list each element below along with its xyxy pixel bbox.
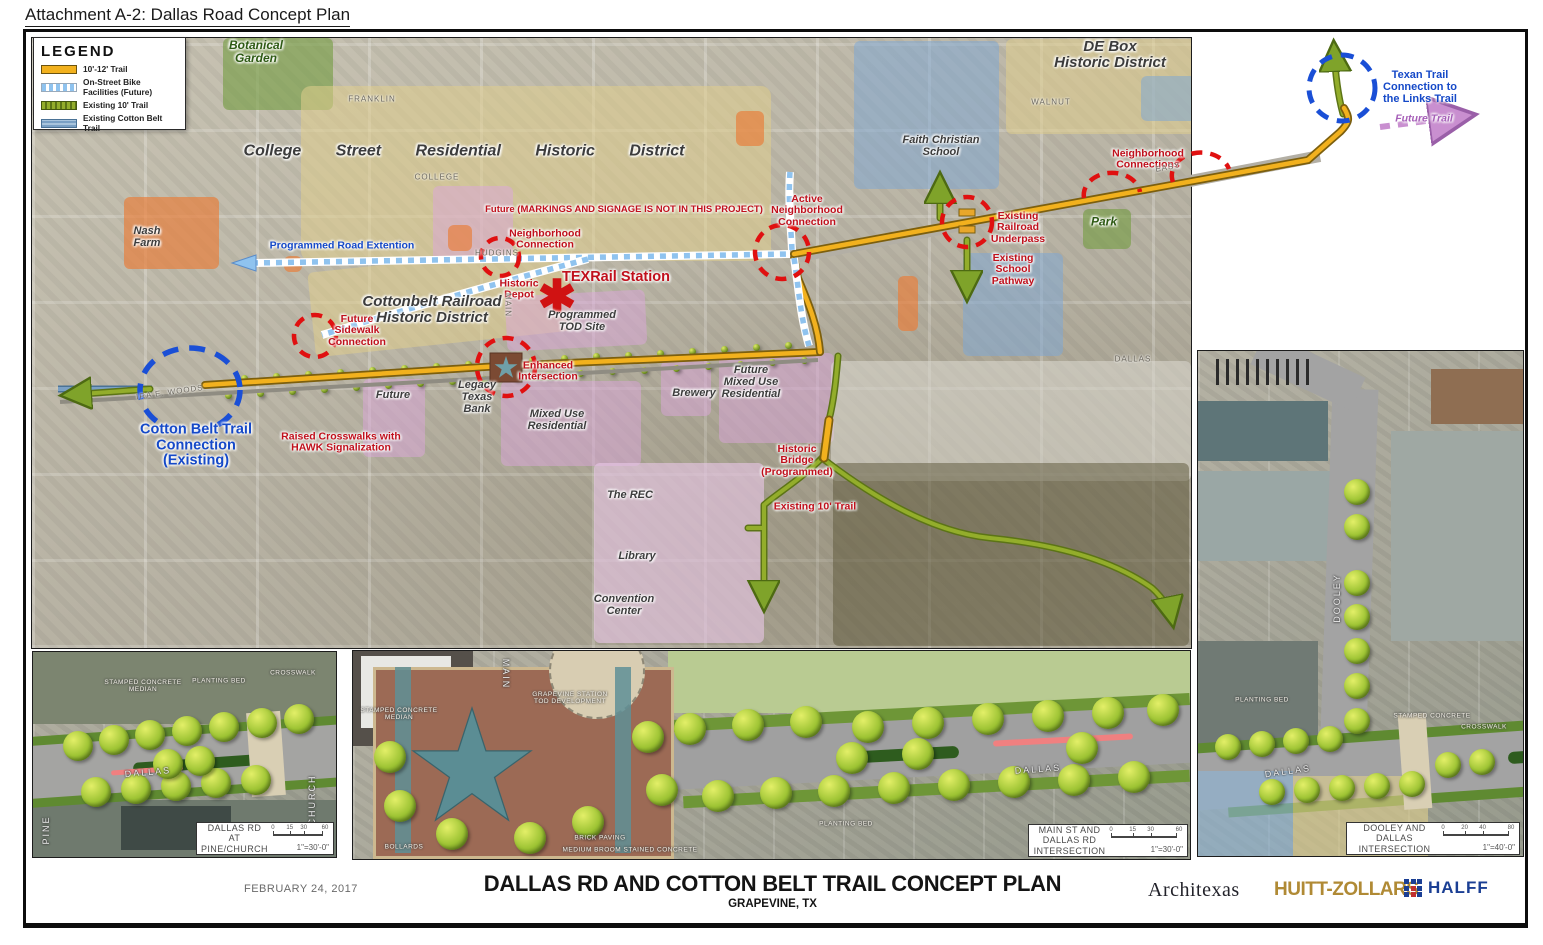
overlay-nash-farm bbox=[124, 197, 219, 269]
main-map-panel bbox=[31, 37, 1192, 649]
inset-main-teal-walk-e bbox=[615, 667, 631, 853]
overlay-parcel-4 bbox=[898, 276, 918, 331]
legend-item-bike-future: On-Street Bike Facilities (Future) bbox=[41, 77, 178, 97]
plan-subtitle: GRAPEVINE, TX bbox=[728, 898, 817, 910]
legend-title: LEGEND bbox=[41, 43, 178, 60]
cotton-belt-swatch-icon bbox=[41, 119, 77, 128]
trail-10-12-swatch-icon bbox=[41, 65, 77, 74]
overlay-parcel-1 bbox=[736, 111, 764, 146]
caption-dooley-dallas: DOOLEY AND DALLAS INTERSECTION 0204080 1… bbox=[1346, 822, 1520, 855]
overlay-field bbox=[833, 463, 1189, 646]
scale-bar: 0204080 bbox=[1443, 825, 1515, 837]
legend-item-label: Existing Cotton Belt Trail bbox=[83, 113, 178, 133]
caption-main-dallas: MAIN ST AND DALLAS RD INTERSECTION 01530… bbox=[1028, 824, 1188, 857]
caption-pine-church: DALLAS RD AT PINE/CHURCH 0153060 1"=30'-… bbox=[196, 822, 334, 855]
overlay-parcel-3 bbox=[284, 256, 302, 272]
scale-text: 1"=30'-0" bbox=[1111, 845, 1183, 854]
attachment-title: Attachment A-2: Dallas Road Concept Plan bbox=[25, 5, 350, 27]
halff-logo-text: HALFF bbox=[1428, 878, 1489, 898]
overlay-mixed-use-residential bbox=[501, 381, 641, 466]
overlay-programmed-tod-site bbox=[505, 289, 648, 351]
scale-bar: 0153060 bbox=[273, 825, 329, 837]
legend-item-cotton-belt: Existing Cotton Belt Trail bbox=[41, 113, 178, 133]
overlay-faith-christian-school bbox=[854, 41, 999, 189]
sheet-page: Attachment A-2: Dallas Road Concept Plan bbox=[0, 0, 1543, 945]
scale-bar: 0153060 bbox=[1111, 827, 1183, 839]
inset-dooley-blue-overlay bbox=[1198, 771, 1293, 856]
inset-pine-crosswalk bbox=[246, 711, 286, 797]
inset-dooley-building-2 bbox=[1198, 471, 1338, 561]
inset-dooley-building-3 bbox=[1391, 431, 1523, 641]
huitt-zollars-logo: HUITT-ZOLLARS bbox=[1274, 879, 1418, 901]
overlay-parcel-2 bbox=[448, 225, 472, 251]
overlay-park bbox=[1083, 209, 1131, 249]
overlay-future-building bbox=[363, 379, 425, 457]
scale-text: 1"=40'-0" bbox=[1443, 843, 1515, 852]
inset-main-teal-walk-w bbox=[395, 667, 411, 853]
inset-pine-treeline bbox=[33, 652, 336, 724]
legend-item-trail-10-12: 10'-12' Trail bbox=[41, 64, 178, 74]
overlay-brewery-block bbox=[661, 361, 711, 416]
legend-item-label: 10'-12' Trail bbox=[83, 64, 128, 74]
inset-dooley-dallas bbox=[1197, 350, 1524, 857]
halff-logo: HALFF bbox=[1404, 878, 1489, 898]
halff-grid-icon bbox=[1404, 879, 1422, 897]
inset-caption-label: MAIN ST AND DALLAS RD INTERSECTION bbox=[1033, 827, 1106, 854]
overlay-school-southeast bbox=[963, 253, 1063, 356]
inset-dooley-road-vertical bbox=[1320, 388, 1379, 761]
scale-text: 1"=30'-0" bbox=[273, 843, 329, 852]
legend-item-existing-10: Existing 10' Trail bbox=[41, 100, 178, 110]
plan-date: FEBRUARY 24, 2017 bbox=[244, 883, 358, 895]
inset-dooley-railroad bbox=[1216, 359, 1311, 385]
overlay-school-north bbox=[1141, 76, 1192, 121]
inset-caption-label: DOOLEY AND DALLAS INTERSECTION bbox=[1351, 825, 1438, 852]
title-block: FEBRUARY 24, 2017 DALLAS RD AND COTTON B… bbox=[26, 861, 1519, 917]
overlay-college-street-district bbox=[301, 86, 771, 261]
legend-item-label: Existing 10' Trail bbox=[83, 100, 148, 110]
bike-future-swatch-icon bbox=[41, 83, 77, 92]
architexas-logo: Architexas bbox=[1148, 879, 1240, 902]
legend-panel: LEGEND 10'-12' TrailOn-Street Bike Facil… bbox=[33, 37, 186, 130]
inset-dooley-building-4 bbox=[1431, 369, 1523, 424]
inset-caption-label: DALLAS RD AT PINE/CHURCH bbox=[201, 825, 268, 852]
existing-10-swatch-icon bbox=[41, 101, 77, 110]
plan-title: DALLAS RD AND COTTON BELT TRAIL CONCEPT … bbox=[484, 871, 1062, 897]
overlay-civic-campus bbox=[594, 463, 764, 643]
inset-dooley-building-1 bbox=[1198, 401, 1328, 461]
legend-item-label: On-Street Bike Facilities (Future) bbox=[83, 77, 178, 97]
overlay-college-purple bbox=[433, 186, 513, 261]
overlay-future-mixed-use bbox=[719, 353, 834, 443]
legend-items: 10'-12' TrailOn-Street Bike Facilities (… bbox=[41, 64, 178, 133]
